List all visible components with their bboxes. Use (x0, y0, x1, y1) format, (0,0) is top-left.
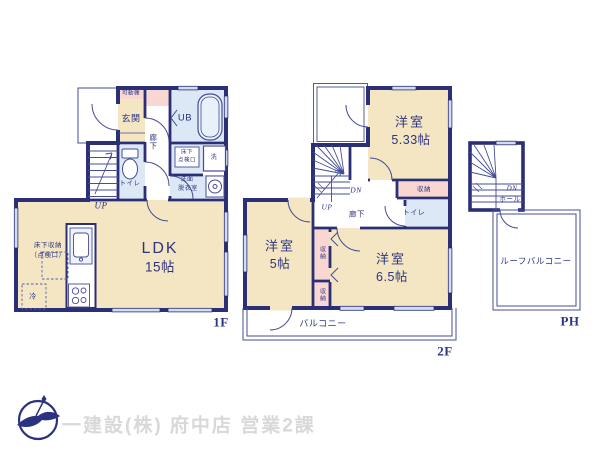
room-label-laundry: 洗 (211, 155, 218, 161)
room-label-ldk-size: 15帖 (145, 260, 175, 274)
porch (78, 88, 118, 143)
penthouse-plan (470, 141, 580, 310)
company-caption: 一建設(株) 府中店 営業2課 (62, 411, 316, 438)
stairs-1f (88, 151, 118, 197)
stove-icon (69, 284, 90, 307)
stairs-down-label-ph: DN (507, 186, 518, 193)
room-label-underfloor-storage-2: （点検口） (31, 253, 66, 260)
bathtub-icon (198, 94, 222, 140)
stairs-2f (313, 145, 350, 202)
room-label-closet-a: 収納 (417, 187, 431, 194)
room-label-underfloor-storage-1: 床下収納 (34, 243, 62, 250)
room-label-hallway-2f: 廊下 (349, 210, 365, 218)
roof-void-box (314, 84, 368, 145)
company-logo (17, 395, 60, 439)
room-label-hallway-1f: 廊下 (149, 134, 157, 151)
room-label-bedroom-c-size: 6.5帖 (376, 271, 408, 284)
stairs-up-label-1f: UP (95, 202, 108, 211)
ph-balcony-door-arc (500, 210, 518, 228)
room-label-ldk: LDK (141, 241, 178, 257)
room-label-entrance: 玄関 (121, 115, 140, 124)
room-label-washroom-2: 脱衣室 (178, 186, 198, 192)
room-label-unit-bath: UB (178, 113, 192, 123)
room-label-closet-c: 収納 (319, 288, 325, 302)
floor-label-1f: 1F (213, 316, 228, 329)
floor-label-2f: 2F (437, 345, 452, 358)
room-label-balcony: バルコニー (299, 320, 346, 329)
room-label-toilet-2f: トイレ (403, 210, 426, 217)
room-label-movable-shelf: 可動棚 (122, 91, 140, 97)
room-label-ph-hall: ホール (500, 197, 521, 204)
toilet-icon-1f (122, 149, 138, 179)
room-label-refrigerator: 冷 (29, 294, 37, 301)
room-label-roof-balcony: ルーフバルコニー (500, 257, 571, 266)
room-label-toilet-1f: トイレ (120, 181, 141, 188)
room-label-underfloor-hatch-1: 床下 (181, 150, 193, 156)
stairs-down-label-2f: DN (350, 186, 361, 194)
room-label-underfloor-hatch-2: 点検口 (178, 158, 196, 164)
room-label-bedroom-c: 洋室 (376, 253, 406, 266)
kitchen-counter (67, 224, 96, 308)
balcony-outline (243, 308, 456, 340)
floorplan-page: 可動棚 玄関 廊下 UB 床下 点検口 洗 洗面 脱衣室 トイレ UP LDK … (0, 0, 600, 450)
floor-label-ph: PH (560, 315, 579, 328)
room-label-bedroom-a: 洋室 (395, 116, 425, 129)
floorplan-graphics (0, 0, 600, 450)
washer-icon (206, 176, 224, 197)
stairs-up-label-2f: UP (322, 203, 333, 211)
kitchen-sink-icon (70, 228, 92, 264)
room-label-bedroom-a-size: 5.33帖 (391, 134, 430, 147)
room-label-closet-b: 収納 (319, 246, 325, 260)
room-label-washroom-1: 洗面 (180, 177, 193, 183)
room-label-bedroom-b-size: 5帖 (270, 258, 290, 271)
room-label-bedroom-b: 洋室 (265, 240, 295, 253)
